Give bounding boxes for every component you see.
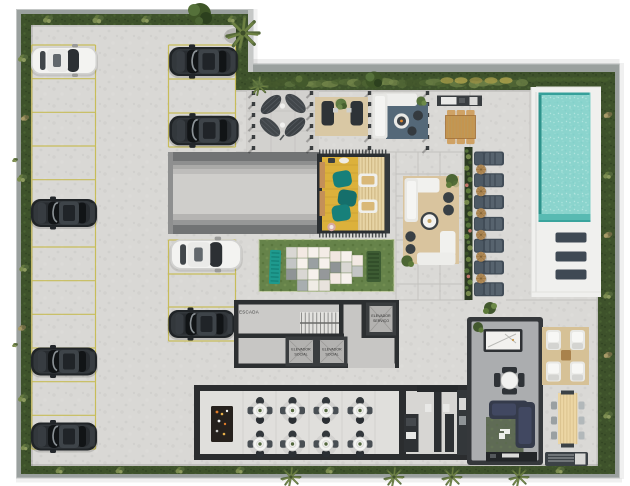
svg-text:SERVIÇO: SERVIÇO <box>373 319 389 323</box>
svg-text:ELEVADOR: ELEVADOR <box>371 314 391 318</box>
svg-text:ELEVADOR: ELEVADOR <box>322 348 342 352</box>
svg-text:ESCADA: ESCADA <box>239 310 259 315</box>
svg-text:ELEVADOR: ELEVADOR <box>291 348 311 352</box>
svg-text:SOCIAL: SOCIAL <box>325 353 338 357</box>
svg-text:SOCIAL: SOCIAL <box>294 353 307 357</box>
